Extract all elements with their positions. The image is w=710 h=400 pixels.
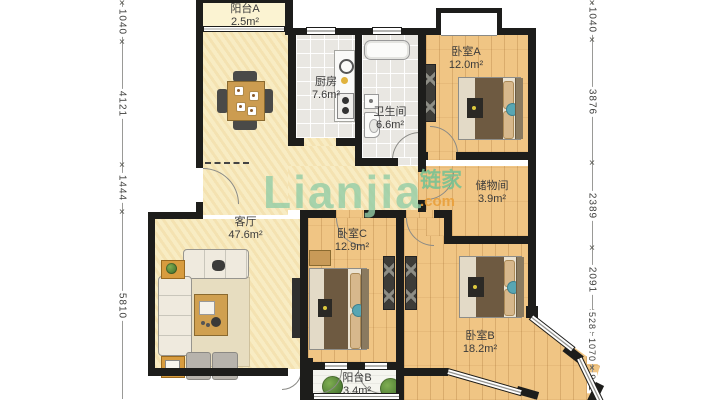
plate (236, 102, 246, 112)
wall (418, 152, 428, 160)
dimension-tick: ✕ (119, 208, 126, 217)
room-name: 卫生间 (362, 106, 418, 119)
wardrobe (405, 256, 417, 310)
wall (308, 210, 336, 218)
wall (196, 0, 203, 31)
room-area: 3.4m² (327, 385, 387, 398)
wardrobe (383, 256, 395, 310)
room-area: 2.5m² (204, 16, 286, 29)
bowl (211, 317, 221, 327)
dimension-tick: ✕ (119, 38, 126, 47)
sofa-cushion (212, 260, 225, 271)
room-area: 12.0m² (426, 59, 506, 72)
room-area: 7.6m² (296, 89, 356, 102)
wall (456, 152, 536, 160)
tray (199, 301, 215, 315)
plate (234, 86, 244, 96)
dimension-tick: ✕ (119, 161, 126, 170)
dimension-value: 2389 (587, 191, 598, 221)
kitchen-label: 厨房 7.6m² (296, 76, 356, 102)
dimension-value: 528 (587, 310, 597, 332)
wall (404, 368, 448, 376)
storage-doorway-floor (418, 172, 426, 200)
burner (342, 107, 349, 114)
balcony-a-label: 阳台A 2.5m² (204, 3, 286, 29)
dimension-tick: ✕ (589, 159, 596, 168)
dimension-value: 3876 (587, 87, 598, 117)
accent-dot (323, 306, 327, 310)
wall (388, 362, 396, 370)
headboard (515, 78, 523, 139)
room-name: 阳台B (327, 372, 387, 385)
wall (300, 210, 308, 372)
wall (348, 362, 364, 370)
wall (148, 212, 203, 219)
headboard (361, 269, 369, 349)
hallway-floor (288, 166, 418, 210)
wall (288, 29, 296, 146)
dimension-value: 1040 (587, 5, 598, 35)
dimension-tick: ✕ (589, 244, 596, 253)
dimension-value: 5810 (117, 291, 128, 321)
room-area: 47.6m² (203, 229, 288, 242)
storage-label: 储物间 3.9m² (448, 180, 536, 206)
dining-table (227, 81, 265, 121)
balcony-b-label: 阳台B 3.4m² (327, 372, 387, 398)
window (306, 27, 336, 35)
room-area: 18.2m² (440, 343, 520, 356)
floor-plan: ✕ ✕ ✕ ✕ 1040 4121 1444 5810 ✕ ✕ ✕ ✕ ✕ ✕ … (0, 0, 710, 400)
wall (364, 210, 406, 218)
sofa-left (158, 276, 192, 356)
room-name: 储物间 (448, 180, 536, 193)
room-name: 卧室C (312, 228, 392, 241)
bay-window-frame (497, 8, 502, 35)
sliding-door (324, 362, 348, 370)
room-area: 3.9m² (448, 193, 536, 206)
coffee-table (194, 294, 228, 336)
wall (528, 28, 536, 168)
wall (396, 218, 404, 372)
pillow (350, 313, 361, 349)
dimension-value: 1070 (587, 336, 597, 364)
wall (148, 368, 288, 376)
accent-dot (473, 285, 477, 289)
bay-window (441, 13, 497, 36)
wall (288, 138, 304, 146)
dimension-value: 4121 (117, 89, 128, 119)
wall (418, 166, 426, 172)
bed (309, 268, 367, 350)
room-name: 阳台A (204, 3, 286, 16)
kitchen-sink (339, 59, 354, 74)
plate (247, 106, 257, 116)
wall (148, 219, 155, 372)
bathroom-label: 卫生间 6.6m² (362, 106, 418, 132)
plate (249, 91, 259, 101)
wall (285, 0, 293, 31)
bedroom-a-label: 卧室A 12.0m² (426, 46, 506, 72)
wall (336, 138, 362, 146)
dimension-tick: ✕ (589, 36, 596, 45)
wall (196, 29, 203, 168)
bedroom-b-label: 卧室B 18.2m² (440, 330, 520, 356)
wall (418, 28, 426, 166)
cup (206, 323, 210, 327)
room-name: 厨房 (296, 76, 356, 89)
kitchen-doorway-floor (304, 138, 336, 146)
tv-unit (292, 278, 300, 338)
room-name: 卧室B (440, 330, 520, 343)
room-name: 客厅 (203, 216, 288, 229)
dimension-value: 1444 (117, 173, 128, 203)
dimension-value: 2091 (587, 265, 598, 295)
bedroom-c-doorway-floor (336, 210, 364, 218)
bed (459, 256, 522, 318)
entry-threshold-dashes (205, 162, 249, 164)
room-area: 12.9m² (312, 241, 392, 254)
wall (444, 236, 536, 244)
cup (201, 321, 205, 325)
sliding-door (364, 362, 388, 370)
wall (418, 200, 426, 212)
dimension-value: 1040 (117, 7, 128, 37)
room-name: 卧室A (426, 46, 506, 59)
window (372, 27, 402, 35)
accent-dot (472, 106, 476, 110)
wall (308, 362, 324, 370)
room-area: 6.6m² (362, 119, 418, 132)
headboard (516, 257, 524, 317)
bedroom-c-label: 卧室C 12.9m² (312, 228, 392, 254)
bed (458, 77, 521, 140)
bathtub (364, 40, 410, 60)
hallway-floor (288, 146, 355, 166)
plant (166, 263, 177, 274)
living-room-label: 客厅 47.6m² (203, 216, 288, 242)
wall (355, 158, 398, 166)
drain (369, 99, 373, 103)
